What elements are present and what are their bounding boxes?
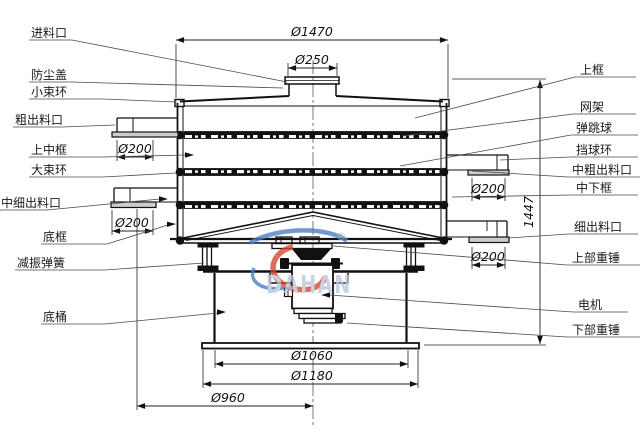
mid-coarse-outlet-spout	[447, 155, 509, 175]
lower-weight-plate-1	[294, 309, 332, 314]
label-damping-spring: 减振弹簧	[17, 255, 65, 270]
label-bottom-barrel: 底桶	[43, 309, 67, 324]
label-small-clamp-ring: 小束环	[31, 85, 67, 99]
clamp-ring-dots	[176, 131, 449, 245]
vibrating-screen-technical-drawing: ® DAHAN Ø1470 Ø250 1447 Ø200 Ø200 Ø200	[0, 0, 640, 437]
upper-weight-block	[292, 249, 331, 260]
dim-outlet-span: Ø960	[210, 390, 245, 405]
dim-fine-outlet: Ø200	[470, 249, 505, 264]
label-upper-frame: 上框	[580, 63, 604, 77]
label-mid-coarse-outlet: 中粗出料口	[572, 162, 632, 177]
dim-top-diameter: Ø1470	[290, 24, 333, 39]
dust-cover-cone	[175, 96, 449, 107]
screen-deck-3	[184, 202, 441, 209]
dim-base-inner: Ø1060	[290, 348, 333, 363]
dim-coarse-outlet: Ø200	[117, 141, 152, 156]
label-ball-retainer-ring: 挡球环	[576, 143, 612, 157]
registered-mark: ®	[336, 230, 347, 243]
dim-base-outer: Ø1180	[290, 368, 333, 383]
coarse-outlet-spout	[112, 118, 178, 137]
drawing-canvas: ® DAHAN Ø1470 Ø250 1447 Ø200 Ø200 Ø200	[0, 0, 640, 437]
label-motor: 电机	[578, 298, 602, 312]
dim-inlet-diameter: Ø250	[294, 52, 329, 67]
label-mesh-frame: 网架	[580, 100, 604, 114]
dim-mid-coarse-outlet: Ø200	[470, 181, 505, 196]
label-mid-fine-outlet: 中细出料口	[1, 195, 61, 210]
label-feed-inlet: 进料口	[31, 26, 67, 40]
mid-fine-outlet-spout	[111, 188, 178, 208]
label-large-clamp-ring: 大束环	[31, 163, 67, 177]
label-dust-cover: 防尘盖	[31, 67, 67, 82]
label-upper-weight: 上部重锤	[572, 250, 620, 265]
label-bottom-frame: 底框	[43, 229, 67, 244]
bottom-frame-cone	[170, 212, 452, 243]
screen-decks	[184, 132, 441, 209]
label-upper-middle-frame: 上中框	[31, 142, 67, 157]
logo-swoosh-blue-top	[250, 230, 347, 243]
screen-deck-2	[184, 169, 441, 176]
dim-total-height: 1447	[521, 196, 536, 228]
dim-mid-fine-outlet: Ø200	[114, 215, 149, 230]
label-lower-weight: 下部重锤	[572, 322, 620, 337]
fine-outlet-spout	[447, 221, 509, 243]
label-fine-outlet: 细出料口	[574, 220, 622, 234]
screen-deck-1	[184, 132, 441, 139]
label-mid-lower-frame: 中下框	[576, 180, 612, 195]
brand-watermark: DAHAN	[266, 270, 352, 299]
label-coarse-outlet: 粗出料口	[15, 113, 63, 127]
label-bouncing-ball: 弹跳球	[576, 121, 612, 135]
feed-inlet	[285, 77, 339, 96]
